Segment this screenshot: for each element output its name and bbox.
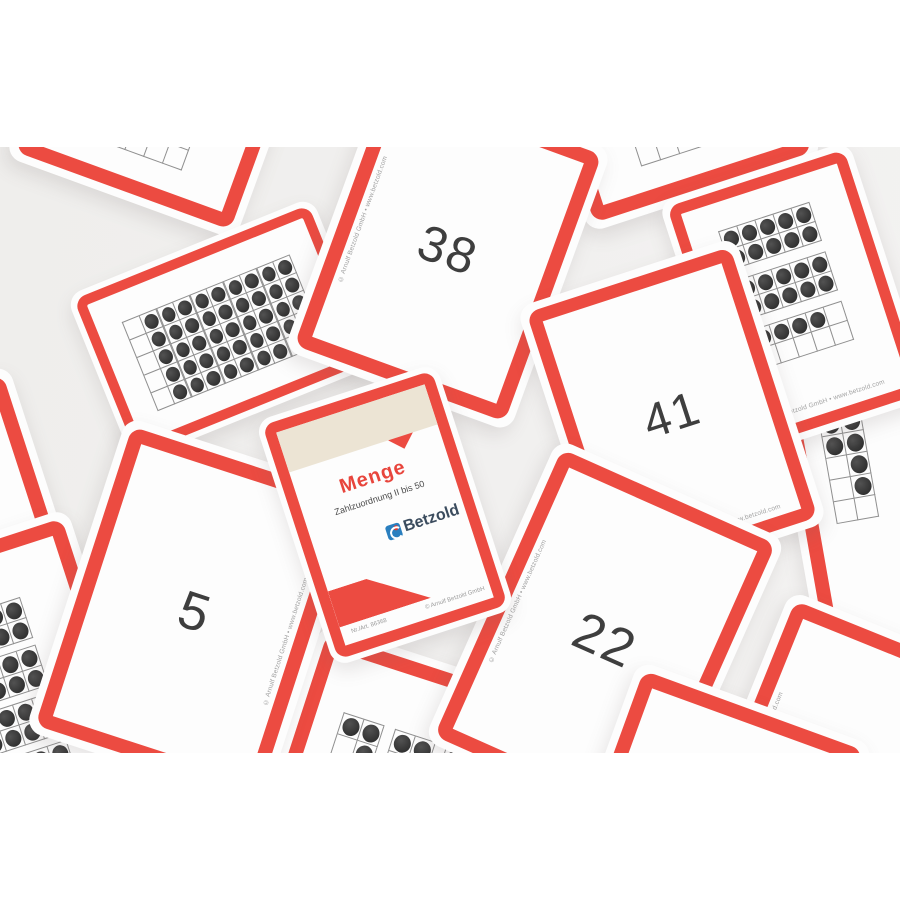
quantity-dot — [810, 254, 829, 274]
quantity-dot — [259, 264, 277, 283]
quantity-dot — [241, 271, 260, 290]
quantity-dot — [3, 600, 23, 621]
quantity-dot — [780, 285, 799, 305]
quantity-dot — [199, 309, 217, 328]
quantity-dot — [793, 205, 812, 225]
quantity-dot — [248, 289, 267, 308]
quantity-dot — [18, 647, 38, 668]
quantity-dot — [755, 272, 774, 292]
quantity-dot — [175, 298, 194, 317]
quantity-dot — [9, 620, 29, 641]
quantity-dot — [782, 230, 801, 250]
quantity-dot — [173, 340, 191, 359]
quantity-dot — [800, 224, 819, 244]
quantity-dot — [762, 291, 781, 311]
quantity-dot — [240, 313, 258, 332]
quantity-dot — [163, 364, 182, 383]
quantity-dot — [852, 475, 872, 496]
quantity-dot — [233, 295, 251, 314]
quantity-dot — [221, 362, 239, 381]
logo-dot-icon — [393, 524, 399, 530]
quantity-dot — [775, 211, 794, 231]
quantity-dot — [739, 223, 758, 243]
frame-cell — [850, 473, 875, 498]
quantity-dot — [187, 375, 205, 394]
quantity-dot — [275, 258, 294, 277]
frame-cell — [843, 429, 868, 454]
quantity-dot — [266, 282, 284, 301]
quantity-dot — [226, 278, 244, 297]
quantity-dot — [773, 266, 792, 286]
quantity-dot — [203, 369, 222, 388]
quantity-dot — [0, 653, 20, 674]
quantity-dot — [745, 242, 764, 262]
frame-cell — [854, 494, 879, 519]
quantity-dot — [196, 351, 215, 370]
quantity-dot — [214, 344, 232, 363]
quantity-dot — [789, 316, 808, 336]
quantity-dot — [155, 347, 174, 366]
quantity-dot — [170, 382, 189, 401]
quantity-dot — [30, 748, 50, 753]
quantity-dot — [182, 316, 201, 335]
quantity-dot — [141, 312, 160, 331]
quantity-dot — [791, 260, 810, 280]
quantity-dot — [339, 715, 361, 737]
quantity-dot — [798, 279, 817, 299]
quantity-dot — [0, 707, 16, 728]
quantity-dot — [391, 731, 413, 753]
quantity-dot — [263, 324, 282, 343]
betzold-logo-icon — [385, 522, 404, 541]
quantity-dot — [2, 727, 22, 748]
quantity-dot — [247, 331, 265, 350]
quantity-dot — [192, 291, 210, 310]
quantity-dot — [215, 302, 234, 321]
quantity-dot — [6, 673, 26, 694]
quantity-dot — [282, 275, 301, 294]
quantity-dot — [256, 306, 275, 325]
quantity-dot — [159, 305, 177, 324]
quantity-dot — [180, 358, 198, 377]
quantity-dot — [764, 236, 783, 256]
quantity-dot — [229, 337, 248, 356]
quantity-dot — [824, 435, 844, 456]
quantity-dot — [206, 327, 224, 346]
quantity-dot — [208, 285, 227, 304]
quantity-dot — [757, 217, 776, 237]
quantity-dot — [166, 322, 184, 341]
product-photo: 38© Arnulf Betzold GmbH • www.betzold.co… — [0, 147, 900, 753]
quantity-dot — [236, 355, 255, 374]
quantity-dot — [222, 320, 241, 339]
quantity-dot — [254, 348, 272, 367]
frame-cell — [846, 451, 871, 476]
quantity-dot — [816, 273, 835, 293]
quantity-dot — [808, 310, 827, 330]
quantity-dot — [771, 321, 790, 341]
quantity-dot — [359, 721, 381, 743]
quantity-dot — [148, 329, 167, 348]
quantity-dot — [273, 300, 291, 319]
quantity-dot — [844, 431, 864, 452]
quantity-dot — [848, 453, 868, 474]
quantity-dot — [189, 333, 208, 352]
